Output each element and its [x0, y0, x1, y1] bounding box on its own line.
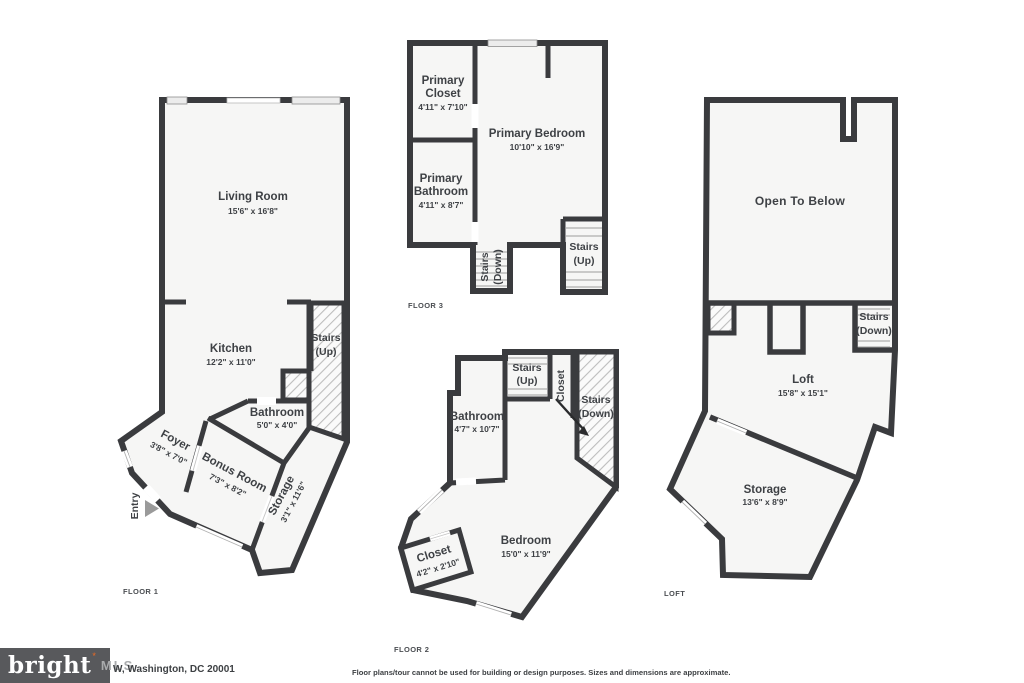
disclaimer-text: Floor plans/tour cannot be used for buil…	[352, 668, 730, 677]
kitchen-label: Kitchen	[210, 343, 252, 355]
living-room-label: Living Room	[218, 191, 288, 203]
floor1-stairs-hatch	[309, 303, 344, 439]
floor2-bathroom-label: Bathroom	[450, 411, 504, 423]
loft-stairs-down-label: Stairs	[859, 311, 888, 323]
floor1-plan: Living Room 15'6" x 16'8" Kitchen 12'2" …	[121, 97, 347, 596]
floor3-stairs-down-label2: (Down)	[492, 249, 504, 285]
brightmls-logo-wordmark: bright	[8, 654, 91, 677]
primary-bathroom-dims: 4'11" x 8'7"	[419, 200, 464, 210]
property-address: W, Washington, DC 20001	[113, 664, 235, 675]
bedroom-dims: 15'0" x 11'9"	[501, 549, 550, 559]
floor2-stairs-up-label2: (Up)	[517, 375, 538, 387]
floor2-bathroom-dims: 4'7" x 10'7"	[454, 424, 499, 434]
primary-bathroom-label2: Bathroom	[414, 186, 468, 198]
floor2-closet-upper-label: Closet	[555, 369, 567, 402]
floor1-bathroom-dims: 5'0" x 4'0"	[257, 420, 297, 430]
floor2-stairs-up-label: Stairs	[512, 362, 541, 374]
loft-tag: LOFT	[664, 589, 685, 598]
window	[292, 97, 340, 104]
floor3-stairs-up-label: Stairs	[569, 241, 598, 253]
living-room-dims: 15'6" x 16'8"	[228, 206, 278, 216]
loft-landing-hatch	[708, 303, 734, 333]
floorplan-page: Living Room 15'6" x 16'8" Kitchen 12'2" …	[0, 0, 1024, 683]
entry-label-group: Entry	[129, 492, 141, 519]
floor3-tag: FLOOR 3	[408, 301, 443, 310]
loft-storage-label: Storage	[744, 484, 787, 496]
window	[167, 97, 187, 104]
primary-closet-label: Primary	[422, 75, 465, 87]
floor2-plan: Stairs (Up) Closet Stairs (Down) Bathroo…	[394, 352, 616, 654]
brightmls-logo: bright * MLS	[0, 648, 110, 683]
loft-room-dims: 15'8" x 15'1"	[778, 388, 828, 398]
floor1-stairs-up-label: Stairs	[311, 332, 340, 344]
floor3-stairs-down-label: Stairs	[479, 252, 491, 281]
door-gap	[472, 104, 479, 128]
floor1-stairs-up-label2: (Up)	[316, 346, 337, 358]
primary-bedroom-label: Primary Bedroom	[489, 128, 586, 140]
floor3-stairs-up-label2: (Up)	[574, 255, 595, 267]
brightmls-logo-asterisk-icon: *	[92, 651, 96, 661]
loft-room-label: Loft	[792, 374, 814, 386]
primary-closet-label2: Closet	[425, 88, 460, 100]
loft-storage-dims: 13'6" x 8'9"	[742, 497, 787, 507]
door-gap	[472, 222, 479, 242]
floor1-bathroom-label: Bathroom	[250, 407, 304, 419]
kitchen-dims: 12'2" x 11'0"	[206, 357, 255, 367]
primary-closet-dims: 4'11" x 7'10"	[418, 102, 467, 112]
window	[227, 98, 280, 103]
floor3-stairs-down-label-group: Stairs (Down)	[479, 249, 504, 285]
window	[488, 40, 537, 47]
loft-plan: Open To Below Stairs (Down) Loft 15'8" x…	[664, 100, 895, 598]
primary-bathroom-label: Primary	[420, 173, 463, 185]
entry-label: Entry	[129, 492, 141, 519]
open-to-below-label: Open To Below	[755, 194, 846, 208]
loft-stairs-down-label2: (Down)	[856, 325, 892, 337]
floor3-plan: Primary Closet 4'11" x 7'10" Primary Bed…	[408, 40, 605, 310]
floorplan-canvas: Living Room 15'6" x 16'8" Kitchen 12'2" …	[0, 0, 1024, 683]
bedroom-label: Bedroom	[501, 535, 551, 547]
floor2-stairs-down-label2: (Down)	[578, 408, 614, 420]
floor2-closet-upper-label-group: Closet	[555, 369, 567, 402]
floor2-tag: FLOOR 2	[394, 645, 429, 654]
floor1-tag: FLOOR 1	[123, 587, 158, 596]
floor2-stairs-down-label: Stairs	[581, 394, 610, 406]
primary-bedroom-dims: 10'10" x 16'9"	[510, 142, 565, 152]
floor1-landing-hatch	[283, 371, 309, 400]
